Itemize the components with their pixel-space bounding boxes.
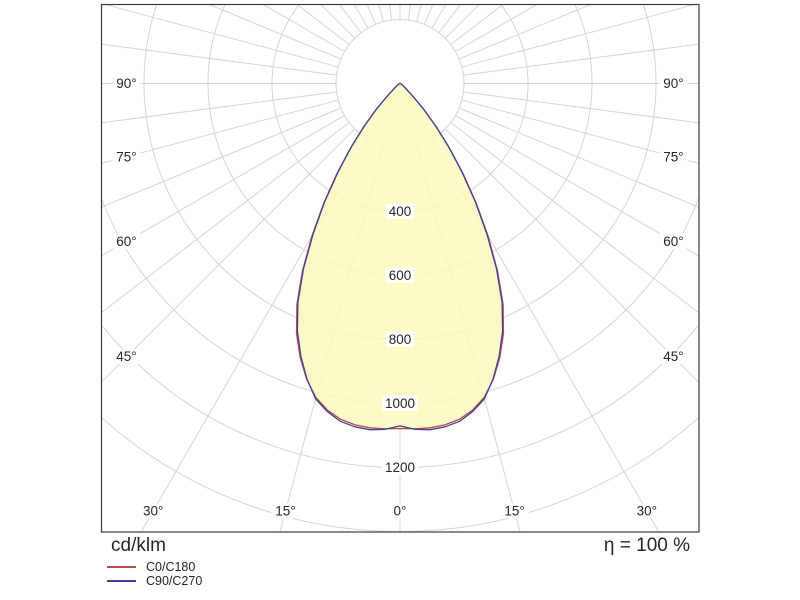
legend-item-c0-c180: C0/C180 bbox=[107, 560, 202, 574]
svg-text:60°: 60° bbox=[663, 234, 683, 249]
svg-text:0°: 0° bbox=[394, 504, 407, 519]
svg-text:45°: 45° bbox=[116, 349, 136, 364]
svg-text:400: 400 bbox=[389, 204, 412, 219]
c0-c180-line-swatch bbox=[107, 566, 136, 568]
svg-text:1200: 1200 bbox=[385, 460, 415, 475]
svg-text:800: 800 bbox=[389, 332, 412, 347]
light-output-ratio-label: η = 100 % bbox=[604, 535, 690, 557]
svg-text:90°: 90° bbox=[116, 76, 136, 91]
unit-label: cd/klm bbox=[111, 535, 166, 557]
legend-label-c90-c270: C90/C270 bbox=[146, 574, 202, 588]
svg-text:15°: 15° bbox=[275, 504, 295, 519]
svg-text:90°: 90° bbox=[663, 76, 683, 91]
legend: C0/C180 C90/C270 bbox=[107, 560, 202, 588]
svg-text:1000: 1000 bbox=[385, 396, 415, 411]
legend-label-c0-c180: C0/C180 bbox=[146, 560, 195, 574]
c90-c270-line-swatch bbox=[107, 580, 136, 582]
photometric-diagram-page: 4006008001000120090°90°75°75°60°60°45°45… bbox=[0, 0, 800, 600]
svg-text:600: 600 bbox=[389, 268, 412, 283]
svg-text:15°: 15° bbox=[504, 504, 524, 519]
svg-text:60°: 60° bbox=[116, 234, 136, 249]
svg-text:30°: 30° bbox=[143, 504, 163, 519]
svg-text:30°: 30° bbox=[637, 504, 657, 519]
svg-text:75°: 75° bbox=[663, 149, 683, 164]
legend-item-c90-c270: C90/C270 bbox=[107, 574, 202, 588]
polar-intensity-chart: 4006008001000120090°90°75°75°60°60°45°45… bbox=[0, 0, 800, 600]
svg-text:45°: 45° bbox=[663, 349, 683, 364]
svg-text:75°: 75° bbox=[116, 149, 136, 164]
